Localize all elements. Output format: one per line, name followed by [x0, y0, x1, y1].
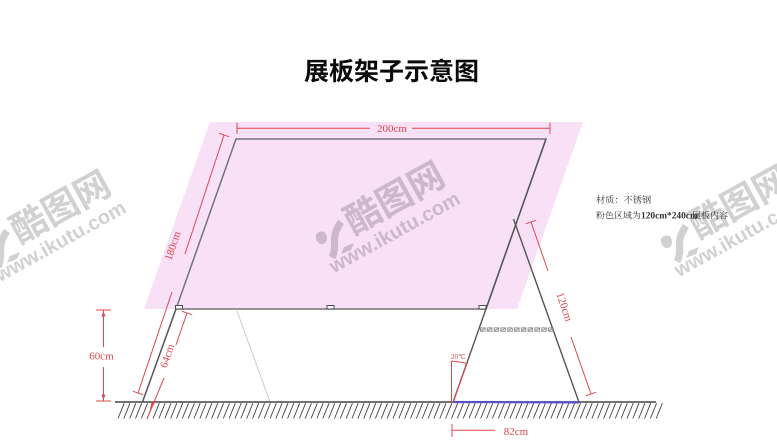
- svg-text:60cm: 60cm: [89, 351, 114, 363]
- svg-text:20℃: 20℃: [451, 353, 466, 361]
- svg-text:82cm: 82cm: [504, 426, 529, 438]
- svg-text:200cm: 200cm: [377, 123, 407, 135]
- svg-text:120cm*240cm: 120cm*240cm: [641, 212, 698, 222]
